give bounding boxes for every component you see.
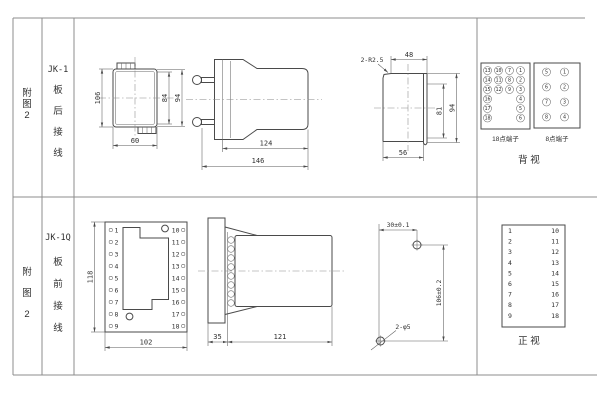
wiring-char: 板 — [53, 84, 63, 96]
terminal-number: 1 — [508, 227, 512, 235]
dim-label-60: 60 — [131, 137, 139, 145]
dim-label-48: 48 — [405, 51, 413, 59]
terminal-number: 13 — [172, 262, 180, 270]
dim-label-124: 124 — [260, 140, 273, 148]
model-name: JK-1Q — [45, 233, 71, 243]
terminal-number: 3 — [563, 100, 566, 106]
figure-char: 附 — [22, 266, 32, 278]
jk1-panel-cutout-drawing: 2-R2.5 48 81 94 56 — [361, 51, 460, 161]
terminal-number: 8 — [115, 310, 119, 318]
terminal-number: 8 — [508, 301, 512, 309]
row2-model-label: JK-1Q 板 前 接 线 — [45, 233, 71, 334]
row2-figure-label: 附 图 2 — [22, 266, 32, 320]
dim-label-84: 84 — [161, 94, 169, 102]
terminal-number: 18 — [551, 312, 559, 320]
figure-char: 图 — [22, 99, 32, 110]
terminal-number: 5 — [508, 269, 512, 277]
terminal-screw — [228, 273, 235, 280]
terminal-number: 15 — [551, 280, 559, 288]
terminal-block-8 — [534, 63, 580, 128]
front-plate-side — [208, 218, 225, 323]
figure-char: 2 — [24, 110, 29, 121]
terminal-number: 17 — [551, 301, 559, 309]
inner-contour — [123, 228, 169, 310]
dim-label-102: 102 — [140, 339, 153, 347]
jk1q-drilling-pattern: 30±0.1 106±0.2 2-φ5 — [371, 222, 448, 350]
terminal-number: 4 — [508, 259, 512, 267]
figure-char: 2 — [24, 309, 29, 320]
terminal-block-18-label: 18点端子 — [492, 134, 519, 143]
terminal-number: 4 — [115, 262, 119, 270]
terminal-number: 5 — [545, 70, 548, 76]
terminal-number: 6 — [508, 280, 512, 288]
dim-label-106-tol: 106±0.2 — [436, 280, 443, 307]
figure-char: 附 — [22, 87, 32, 99]
terminal-number: 13 — [484, 68, 490, 74]
terminal-number: 16 — [172, 298, 180, 306]
terminal-number: 14 — [551, 269, 559, 277]
terminal-number: 1 — [115, 226, 119, 234]
terminal-number: 14 — [172, 274, 180, 282]
terminal-number: 9 — [508, 87, 511, 93]
mounting-hole — [162, 225, 169, 232]
terminal-number: 5 — [519, 106, 522, 112]
terminal-number: 10 — [551, 227, 559, 235]
dim-label-56: 56 — [399, 149, 407, 157]
terminal-number: 18 — [484, 116, 490, 122]
terminal-number: 3 — [519, 87, 522, 93]
jk1q-side-view-drawing: 35 121 — [198, 218, 346, 346]
terminal-number: 11 — [172, 238, 180, 246]
terminal-number: 12 — [551, 248, 559, 256]
jk1q-front-view-drawing: 1 2 3 4 5 6 7 8 9 10 11 12 13 14 15 16 1… — [87, 222, 188, 351]
terminal-screw — [228, 291, 235, 298]
dim-label-35: 35 — [213, 333, 221, 341]
wiring-char: 线 — [53, 322, 63, 334]
terminal-number: 17 — [172, 310, 180, 318]
wiring-char: 接 — [53, 300, 63, 312]
terminal-screw — [228, 237, 235, 244]
wiring-char: 板 — [53, 256, 63, 268]
dim-label-30: 30±0.1 — [387, 222, 410, 229]
mounting-hole — [126, 313, 133, 320]
wiring-char: 接 — [53, 126, 63, 138]
terminal-number: 7 — [508, 68, 511, 74]
terminal-number: 13 — [551, 259, 559, 267]
terminal-screw — [228, 300, 235, 307]
terminal-number: 1 — [519, 68, 522, 74]
wiring-char: 线 — [53, 147, 63, 159]
terminal-number: 8 — [508, 78, 511, 84]
terminal-number: 1 — [563, 70, 566, 76]
terminal-number: 2 — [563, 85, 566, 91]
terminal-number: 17 — [484, 106, 490, 112]
terminal-number: 7 — [115, 298, 119, 306]
dim-label-146: 146 — [252, 157, 265, 165]
terminal-number: 5 — [115, 274, 119, 282]
terminal-number: 10 — [495, 68, 501, 74]
front-view-label: 正 视 — [518, 335, 540, 347]
dim-label-81: 81 — [436, 107, 444, 115]
terminal-number: 7 — [545, 100, 548, 106]
terminal-number: 4 — [563, 115, 566, 121]
terminal-number: 15 — [172, 286, 180, 294]
terminal-number: 2 — [115, 238, 119, 246]
terminal-number: 11 — [551, 238, 559, 246]
terminal-number: 3 — [115, 250, 119, 258]
terminal-number: 12 — [172, 250, 180, 258]
row1-figure-label: 附 图 2 — [22, 87, 32, 121]
terminal-number: 2 — [519, 78, 522, 84]
terminal-screw — [193, 118, 202, 127]
rear-view-label: 背 视 — [518, 154, 540, 166]
dim-label-94-cutout: 94 — [449, 104, 457, 112]
terminal-screw — [228, 246, 235, 253]
terminal-number: 11 — [495, 78, 501, 84]
model-name: JK-1 — [48, 65, 68, 75]
terminal-number: 6 — [115, 286, 119, 294]
terminal-number: 7 — [508, 291, 512, 299]
terminal-number: 16 — [484, 97, 490, 103]
terminal-number: 3 — [508, 248, 512, 256]
row1-model-label: JK-1 板 后 接 线 — [48, 65, 68, 159]
terminal-number: 2 — [508, 238, 512, 246]
technical-drawing-svg: 附 图 2 JK-1 板 后 接 线 附 图 2 JK-1Q 板 前 接 线 — [0, 0, 600, 400]
jk1q-terminal-table: 1 2 3 4 5 6 7 8 9 10 11 12 13 14 15 16 1… — [502, 225, 565, 347]
dim-label-94: 94 — [174, 94, 182, 102]
wiring-char: 后 — [53, 106, 63, 117]
terminal-number: 15 — [484, 87, 490, 93]
jk1-side-view-drawing: 124 146 — [186, 60, 322, 171]
terminal-number: 9 — [508, 312, 512, 320]
terminal-screw — [228, 264, 235, 271]
terminal-number: 6 — [545, 85, 548, 91]
terminal-number: 12 — [495, 87, 501, 93]
terminal-screw — [228, 255, 235, 262]
dim-label-118: 118 — [87, 271, 95, 284]
terminal-screw — [193, 76, 202, 85]
corner-radius-note: 2-R2.5 — [361, 57, 384, 64]
terminal-number: 10 — [172, 226, 180, 234]
figure-char: 图 — [22, 288, 32, 299]
terminal-screw — [228, 282, 235, 289]
terminal-number: 9 — [115, 322, 119, 330]
drawing-sheet: 附 图 2 JK-1 板 后 接 线 附 图 2 JK-1Q 板 前 接 线 — [0, 0, 600, 400]
terminal-number: 14 — [484, 78, 490, 84]
cutout-outline — [383, 74, 427, 145]
terminal-number: 16 — [551, 291, 559, 299]
dim-label-106: 106 — [94, 92, 102, 105]
terminal-number: 18 — [172, 322, 180, 330]
jk1-terminals-18pt: 13 10 7 1 14 11 8 2 15 12 9 3 16 4 17 5 … — [481, 63, 530, 143]
wiring-char: 前 — [53, 278, 63, 290]
dim-label-121: 121 — [274, 333, 287, 341]
terminal-number: 8 — [545, 115, 548, 121]
jk1-terminals-8pt: 5 1 6 2 7 3 8 4 8点端子 — [534, 63, 580, 143]
hole-note-label: 2-φ5 — [395, 324, 410, 331]
terminal-block-8-label: 8点端子 — [545, 134, 569, 143]
jk1-front-view-drawing: 106 84 94 60 — [94, 57, 185, 149]
terminal-number: 6 — [519, 116, 522, 122]
terminal-number: 4 — [519, 97, 522, 103]
